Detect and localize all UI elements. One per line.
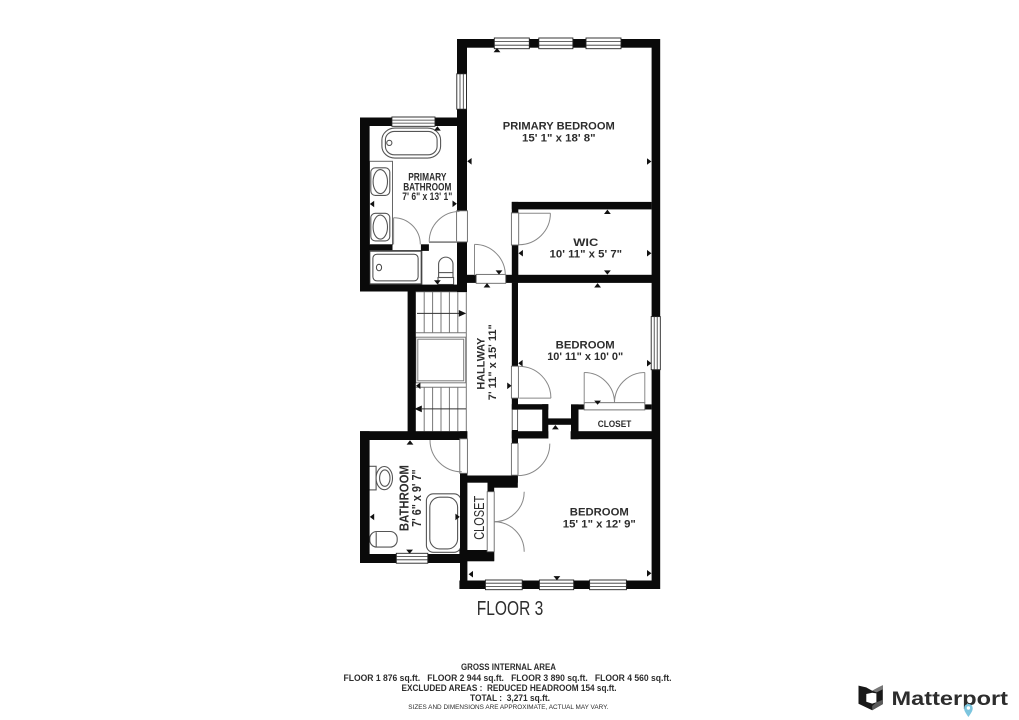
svg-text:GROSS INTERNAL AREA: GROSS INTERNAL AREA: [461, 662, 556, 672]
svg-text:BEDROOM: BEDROOM: [570, 507, 629, 519]
svg-text:PRIMARY BEDROOM: PRIMARY BEDROOM: [503, 120, 615, 132]
svg-text:7' 6" x 13' 1": 7' 6" x 13' 1": [402, 191, 452, 203]
svg-text:7' 11" x 15' 11": 7' 11" x 15' 11": [487, 324, 499, 400]
svg-text:EXCLUDED AREAS : REDUCED HEAD: EXCLUDED AREAS : REDUCED HEADROOM 154 sq…: [402, 683, 617, 693]
svg-text:CLOSET: CLOSET: [471, 496, 488, 540]
svg-text:7' 6" x 9' 7": 7' 6" x 9' 7": [410, 469, 424, 527]
svg-text:FLOOR 3: FLOOR 3: [477, 598, 544, 620]
svg-text:Matterport: Matterport: [892, 688, 1009, 710]
svg-text:15' 1" x 12' 9": 15' 1" x 12' 9": [563, 519, 636, 531]
svg-text:WIC: WIC: [573, 237, 598, 249]
svg-text:CLOSET: CLOSET: [598, 419, 632, 430]
svg-text:BEDROOM: BEDROOM: [556, 339, 615, 351]
svg-text:10' 11" x 5' 7": 10' 11" x 5' 7": [550, 249, 623, 261]
svg-text:SIZES AND DIMENSIONS ARE APPRO: SIZES AND DIMENSIONS ARE APPROXIMATE, AC…: [408, 704, 608, 711]
svg-text:HALLWAY: HALLWAY: [476, 337, 488, 390]
svg-text:15' 1" x 18' 8": 15' 1" x 18' 8": [522, 132, 596, 144]
svg-text:10' 11" x 10' 0": 10' 11" x 10' 0": [547, 351, 623, 363]
svg-text:TOTAL : 3,271 sq.ft.: TOTAL : 3,271 sq.ft.: [470, 693, 550, 703]
svg-text:FLOOR 1 876 sq.ft. FLOOR 2 9: FLOOR 1 876 sq.ft. FLOOR 2 944 sq.ft. FL…: [344, 673, 672, 683]
